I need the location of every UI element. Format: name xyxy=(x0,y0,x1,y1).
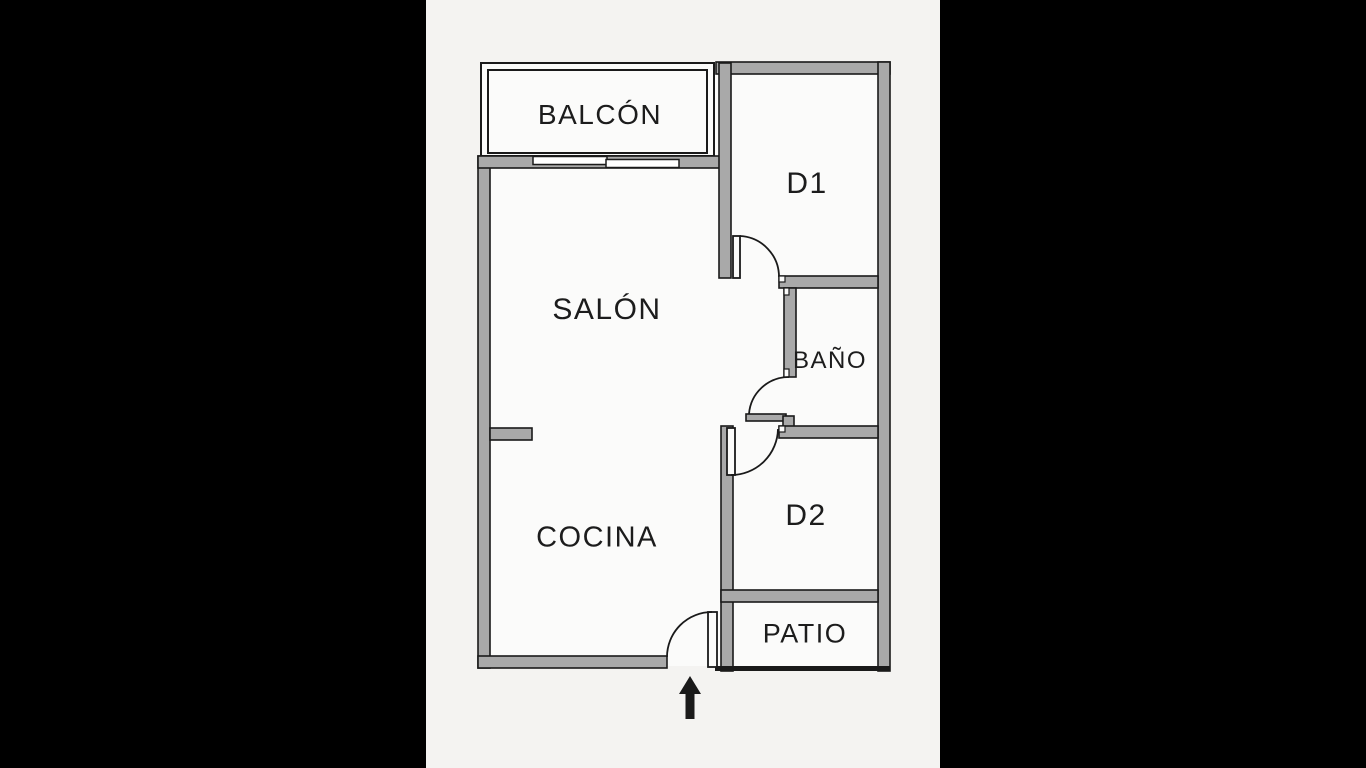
wall-jamb-notch xyxy=(784,369,789,377)
room-label-patio: PATIO xyxy=(763,619,848,650)
room-label-d1: D1 xyxy=(786,167,827,201)
entrance-door-leaf xyxy=(708,612,717,667)
bano-door-leaf xyxy=(746,414,786,421)
wall-bano-d2 xyxy=(779,426,878,438)
wall-jamb-notch xyxy=(779,276,785,282)
wall-salon-d1 xyxy=(719,63,731,278)
floor-plan-drawing xyxy=(426,0,940,768)
wall-right xyxy=(878,62,890,671)
wall-jamb-notch xyxy=(784,288,789,295)
d2-door-leaf xyxy=(727,428,735,475)
patio-bottom-edge xyxy=(715,666,890,671)
wall-jamb-notch xyxy=(779,426,785,432)
wall-d1-bano xyxy=(779,276,878,288)
wall-salon-cocina-stub xyxy=(490,428,532,440)
floor-plan-sheet: BALCÓN D1 SALÓN BAÑO COCINA D2 PATIO xyxy=(426,0,940,768)
wall-top xyxy=(716,62,890,74)
room-label-salon: SALÓN xyxy=(552,293,661,327)
screenshot-canvas: { "floor_plan": { "title": "Apartment fl… xyxy=(0,0,1366,768)
wall-d2-patio xyxy=(721,590,878,602)
wall-bottom xyxy=(478,656,667,668)
room-label-cocina: COCINA xyxy=(536,522,658,555)
room-label-bano: BAÑO xyxy=(793,347,867,375)
entrance-arrow-icon xyxy=(679,676,701,719)
room-label-balcon: BALCÓN xyxy=(538,99,662,131)
wall-left xyxy=(478,156,490,668)
d1-door-leaf xyxy=(733,236,740,278)
window-salon-left xyxy=(533,157,607,165)
room-label-d2: D2 xyxy=(785,499,826,533)
window-salon-right xyxy=(606,160,679,168)
